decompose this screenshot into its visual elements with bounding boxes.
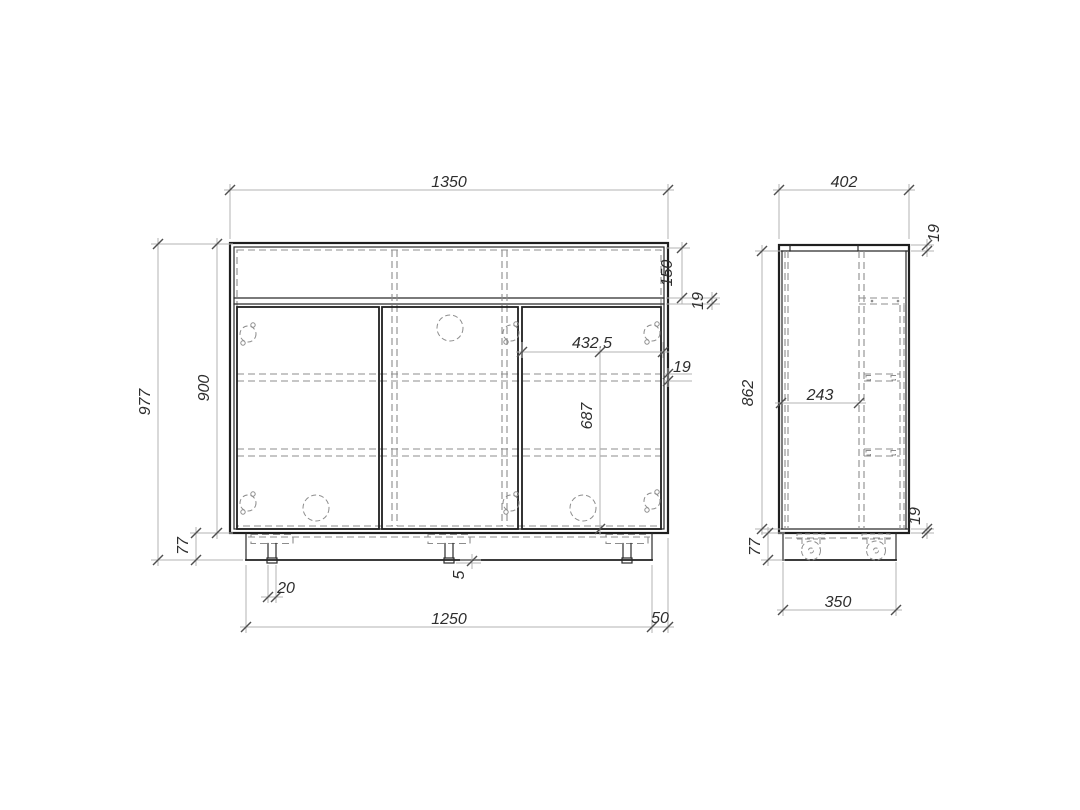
paper-background: [0, 0, 1080, 810]
dim-label-overall-height: 977: [137, 388, 154, 416]
dim-label-plinth-height: 77: [175, 536, 192, 555]
dim-label-foot-width: 20: [276, 580, 295, 597]
dim-label-shelf-thickness: 19: [673, 359, 691, 376]
dim-label-niche-height: 150: [659, 260, 676, 287]
dim-label-foot-protrusion: 5: [451, 570, 468, 579]
dim-label-right-door-width: 432.5: [572, 335, 612, 352]
dim-label-door-height: 687: [579, 402, 596, 430]
dim-label-overall-width: 1350: [431, 174, 467, 191]
drawing-canvas: 1350 977 900 77 150 19: [0, 0, 1080, 810]
dim-label-side-plinth-height: 77: [747, 537, 764, 556]
dim-label-overall-depth: 402: [831, 174, 858, 191]
technical-drawing: 1350 977 900 77 150 19: [0, 0, 1080, 810]
dim-label-bottom-thickness: 19: [907, 507, 924, 525]
dim-label-plinth-offset: 50: [651, 610, 669, 627]
dim-label-carcass-height: 900: [196, 375, 213, 402]
dim-label-plinth-depth: 350: [825, 594, 852, 611]
dim-label-plinth-width: 1250: [431, 611, 467, 628]
dim-label-rail-thickness: 19: [690, 292, 707, 310]
dim-label-top-thickness: 19: [926, 224, 943, 242]
dim-label-internal-height: 862: [740, 380, 757, 407]
dim-label-partition-depth: 243: [806, 387, 834, 404]
